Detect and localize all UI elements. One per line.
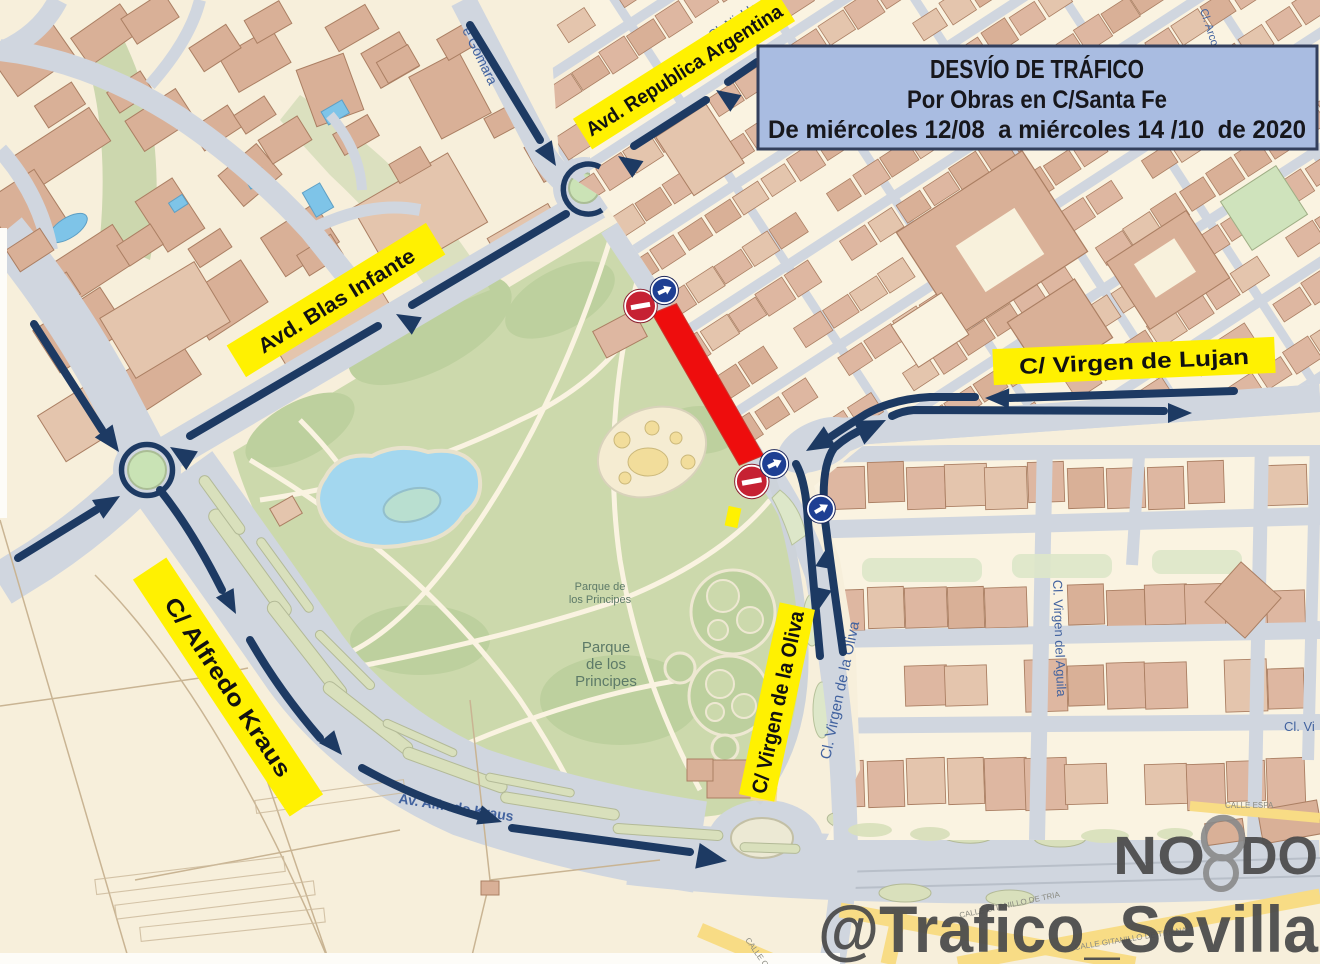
svg-text:DO: DO (1240, 826, 1318, 886)
svg-text:CALLE ESPA: CALLE ESPA (1225, 801, 1274, 810)
svg-text:De miércoles 12/08 a miércole: De miércoles 12/08 a miércoles 14 /10 de… (768, 116, 1306, 144)
svg-text:Principes: Principes (575, 673, 637, 690)
svg-text:Por Obras en C/Santa Fe: Por Obras en C/Santa Fe (907, 86, 1167, 114)
svg-text:@Trafico_Sevilla: @Trafico_Sevilla (818, 892, 1319, 964)
svg-text:de los: de los (586, 656, 626, 673)
svg-text:los Principes: los Principes (569, 594, 632, 606)
svg-text:Parque de: Parque de (575, 581, 626, 593)
svg-text:Cl. Vi: Cl. Vi (1284, 719, 1315, 734)
svg-text:Parque: Parque (582, 639, 630, 656)
svg-text:NO: NO (1113, 826, 1205, 886)
svg-text:DESVÍO DE TRÁFICO: DESVÍO DE TRÁFICO (930, 54, 1144, 84)
